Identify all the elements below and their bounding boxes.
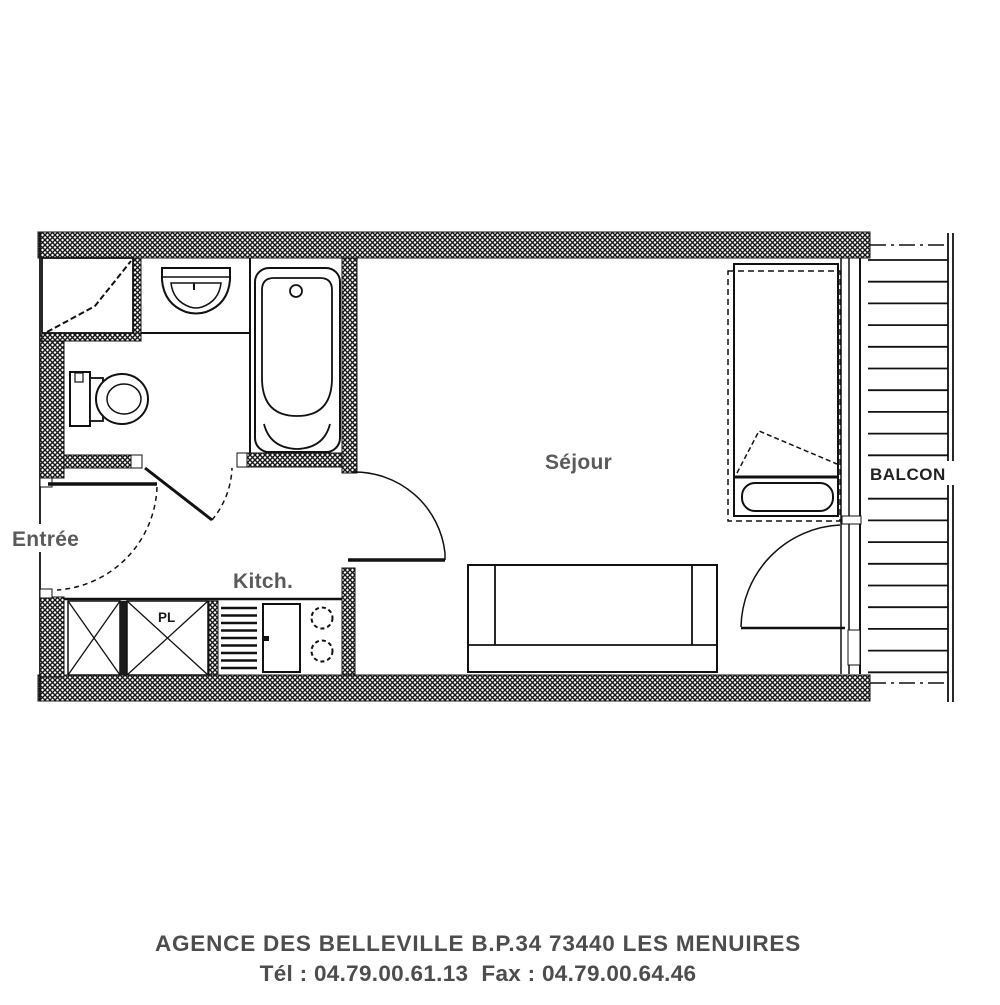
- agency-address: AGENCE DES BELLEVILLE B.P.34 73440 LES M…: [155, 931, 801, 956]
- north-wall: [38, 232, 870, 258]
- burner-2: [312, 641, 333, 662]
- shower: [42, 258, 133, 333]
- burner-1: [312, 608, 333, 629]
- balcony-door-stile: [848, 630, 860, 665]
- living-room-door-swing-arc: [352, 472, 445, 560]
- balcony: BALCON: [866, 233, 954, 702]
- toilet: [70, 372, 148, 426]
- balcony-door-swing-arc: [741, 525, 840, 627]
- entry-door-jamb-bottom: [40, 589, 52, 598]
- wc-south-wall: [64, 455, 142, 468]
- balcony-door: [741, 525, 845, 628]
- kitchen-label: Kitch.: [233, 570, 293, 593]
- sofa-outline: [468, 565, 717, 672]
- bathtub-outline: [255, 268, 340, 452]
- sink-drainer: [221, 608, 257, 668]
- kitchenette: PL: [64, 599, 342, 675]
- footer: AGENCE DES BELLEVILLE B.P.34 73440 LES M…: [155, 931, 801, 986]
- floor-plan-page: BALCON: [0, 0, 1000, 1000]
- west-wall-lower-block: [40, 597, 64, 677]
- cabinet-divider: [120, 601, 127, 675]
- wc-door-jamb: [131, 455, 142, 468]
- bathtub: [255, 268, 340, 452]
- bathroom-door-swing-arc: [212, 468, 232, 520]
- bathroom-door: [145, 468, 232, 520]
- kitchen-unit-knob: [264, 636, 269, 641]
- window-wall: [841, 258, 861, 674]
- kitchen-east-wall: [342, 568, 355, 675]
- west-wall-upper-block: [40, 335, 64, 478]
- entree-label: Entrée: [12, 528, 79, 551]
- sofa: [468, 565, 717, 672]
- bathroom-east-wall: [342, 258, 357, 473]
- agency-phone-fax: Tél : 04.79.00.61.13 Fax : 04.79.00.64.4…: [260, 961, 697, 986]
- shower-tray: [42, 258, 133, 333]
- balcony-label: BALCON: [870, 465, 946, 484]
- kitchen-partition: [209, 601, 218, 675]
- bed: [728, 264, 840, 521]
- washbasin: [162, 268, 230, 314]
- bathroom-door-leaf: [145, 468, 212, 520]
- window-mullion: [842, 516, 861, 524]
- toilet-cistern: [70, 372, 90, 426]
- living-room-label: Séjour: [545, 451, 612, 474]
- living-room-door: [348, 472, 445, 560]
- bath-south-wall: [247, 453, 342, 467]
- south-wall: [38, 675, 870, 701]
- closet-label: PL: [158, 610, 175, 625]
- shower-bottom-wall: [42, 333, 141, 341]
- bath-wall-jamb: [237, 453, 247, 467]
- floor-plan-drawing: BALCON: [0, 0, 1000, 1000]
- toilet-bowl-outer: [96, 374, 148, 424]
